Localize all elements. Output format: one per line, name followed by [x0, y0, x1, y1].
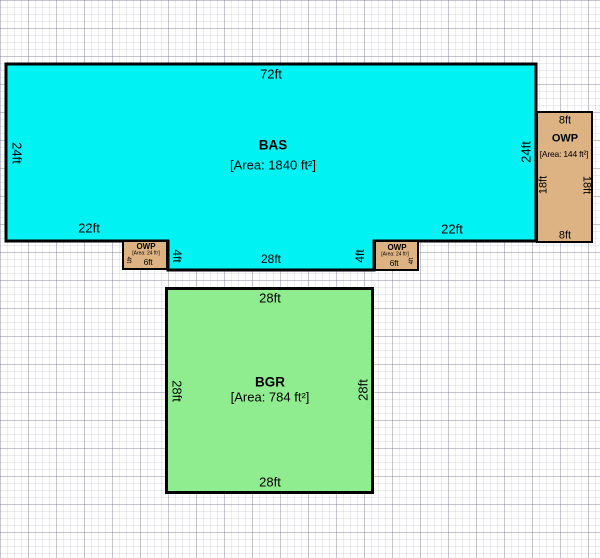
bas-dim-step-right: 4ft	[354, 249, 366, 262]
bas-dim-bottom-right: 22ft	[441, 223, 463, 236]
owp-small-right-dim-bottom: 6ft	[390, 259, 399, 268]
bas-room-area: [Area: 1840 ft²]	[230, 159, 316, 172]
bgr-dim-right: 28ft	[357, 379, 370, 401]
owp-small-right-dim-side: 4ft	[409, 258, 415, 265]
owp-large-room-name: OWP	[552, 134, 578, 145]
bgr-room-name: BGR	[255, 375, 285, 389]
bas-dim-left: 24ft	[11, 142, 24, 164]
bas-dim-bottom-middle: 28ft	[261, 253, 281, 265]
owp-small-left-dim-side: 4ft	[125, 257, 131, 264]
owp-small-right-room-area: [Area: 24 ft²]	[381, 253, 409, 258]
bgr-dim-left: 28ft	[171, 380, 184, 402]
owp-large-dim-left: 18ft	[539, 176, 550, 194]
owp-large-room-area: [Area: 144 ft²]	[540, 150, 589, 159]
bas-dim-bottom-left: 22ft	[78, 222, 100, 235]
owp-large-dim-bottom: 8ft	[559, 231, 571, 242]
bgr-room-area: [Area: 784 ft²]	[231, 391, 310, 404]
bgr-dim-bottom: 28ft	[259, 476, 281, 489]
floorplan-canvas: 72ft BAS [Area: 1840 ft²] 24ft 24ft 22ft…	[0, 0, 600, 558]
bas-dim-right: 24ft	[520, 141, 533, 163]
owp-small-left-room-area: [Area: 24 ft²]	[132, 252, 160, 257]
owp-large-dim-right: 18ft	[581, 176, 592, 194]
bas-room-name: BAS	[259, 138, 288, 152]
bas-dim-top: 72ft	[260, 68, 282, 81]
bgr-dim-top: 28ft	[259, 292, 281, 305]
owp-small-left-dim-bottom: 6ft	[144, 258, 153, 267]
bas-dim-step-left: 4ft	[171, 249, 183, 262]
owp-large-dim-top: 8ft	[559, 116, 571, 127]
